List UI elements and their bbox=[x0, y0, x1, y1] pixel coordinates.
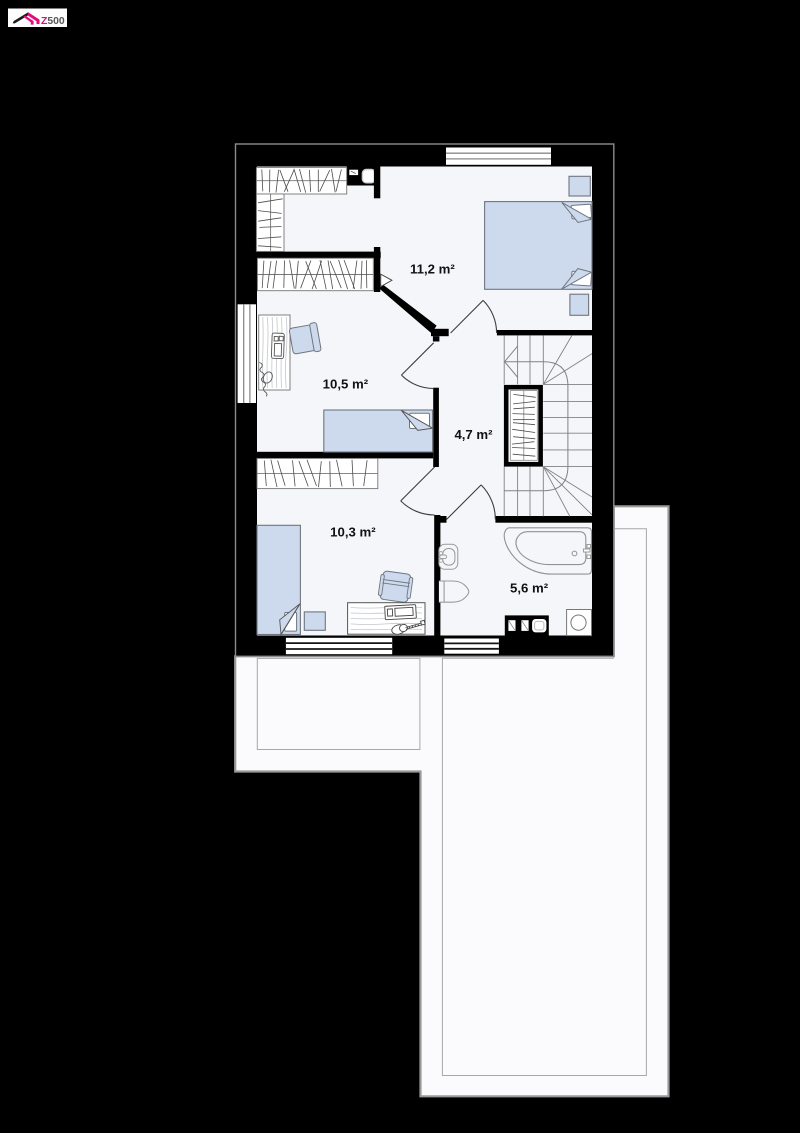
svg-text:Z500: Z500 bbox=[41, 16, 65, 27]
svg-text:5,6 m²: 5,6 m² bbox=[510, 580, 549, 595]
svg-text:4,7 m²: 4,7 m² bbox=[454, 427, 493, 442]
svg-text:10,5 m²: 10,5 m² bbox=[323, 376, 369, 391]
svg-text:10,3 m²: 10,3 m² bbox=[330, 524, 376, 539]
svg-text:11,2 m²: 11,2 m² bbox=[410, 261, 455, 276]
